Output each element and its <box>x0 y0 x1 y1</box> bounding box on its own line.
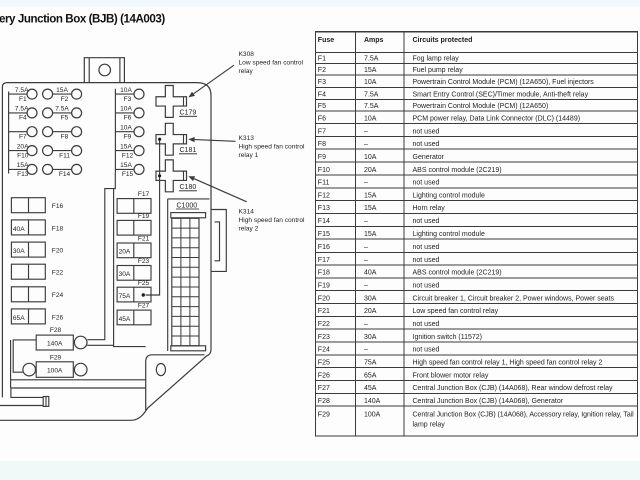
svg-text:Low speed fan control: Low speed fan control <box>239 60 304 67</box>
svg-text:–: – <box>364 141 368 148</box>
svg-text:F1: F1 <box>19 96 27 103</box>
svg-text:10A: 10A <box>364 79 377 86</box>
svg-text:140A: 140A <box>47 341 63 348</box>
svg-text:20A: 20A <box>364 167 377 174</box>
svg-text:15A: 15A <box>120 162 132 169</box>
svg-text:–: – <box>364 218 368 225</box>
svg-text:65A: 65A <box>364 372 377 379</box>
svg-text:F5: F5 <box>61 115 69 122</box>
svg-text:F19: F19 <box>318 283 330 290</box>
svg-text:F29: F29 <box>50 355 62 362</box>
svg-text:F26: F26 <box>318 372 330 379</box>
svg-text:F20: F20 <box>52 248 64 255</box>
svg-text:45A: 45A <box>119 316 131 323</box>
svg-text:40A: 40A <box>13 226 25 233</box>
svg-text:Central Junction Box (CJB) (14: Central Junction Box (CJB) (14A068), Acc… <box>413 411 635 418</box>
svg-text:K313: K313 <box>239 135 255 142</box>
svg-text:F3: F3 <box>318 79 326 86</box>
svg-text:C179: C179 <box>180 110 197 117</box>
svg-text:F16: F16 <box>52 203 64 210</box>
svg-text:–: – <box>364 244 368 251</box>
svg-text:F13: F13 <box>17 171 29 178</box>
svg-text:Circuit breaker 1, Circuit bre: Circuit breaker 1, Circuit breaker 2, Po… <box>413 295 615 302</box>
svg-text:not used: not used <box>413 321 440 328</box>
svg-text:10A: 10A <box>120 87 132 94</box>
svg-text:not used: not used <box>413 128 440 135</box>
svg-text:not used: not used <box>413 283 440 290</box>
svg-text:–: – <box>364 283 368 290</box>
svg-text:15A: 15A <box>364 67 377 74</box>
svg-text:C1000: C1000 <box>177 202 198 209</box>
svg-text:Circuits protected: Circuits protected <box>413 37 473 44</box>
svg-text:Powertrain Control Module (PCM: Powertrain Control Module (PCM) (12A650) <box>413 103 549 110</box>
svg-text:lamp relay: lamp relay <box>413 422 446 429</box>
svg-text:PCM power relay, Data Link Con: PCM power relay, Data Link Connector (DL… <box>413 116 581 123</box>
svg-text:F24: F24 <box>318 347 330 354</box>
svg-text:F26: F26 <box>52 314 64 321</box>
svg-text:Smart Entry Control (SEC)/Time: Smart Entry Control (SEC)/Timer module, … <box>413 91 589 98</box>
svg-text:15A: 15A <box>120 143 132 150</box>
svg-text:F11: F11 <box>59 152 70 159</box>
svg-text:F27: F27 <box>138 303 150 310</box>
svg-text:Low speed fan control relay: Low speed fan control relay <box>413 308 499 315</box>
svg-text:140A: 140A <box>364 398 381 405</box>
svg-text:10A: 10A <box>120 125 132 132</box>
svg-text:F29: F29 <box>318 411 330 418</box>
svg-text:F5: F5 <box>318 103 326 110</box>
svg-text:Fuse: Fuse <box>318 37 334 44</box>
svg-text:7.5A: 7.5A <box>15 87 29 94</box>
svg-text:F9: F9 <box>318 154 326 161</box>
svg-text:ABS control module (2C219): ABS control module (2C219) <box>413 167 502 174</box>
svg-text:30A: 30A <box>13 248 25 255</box>
svg-text:Central Junction Box (CJB) (14: Central Junction Box (CJB) (14A068), Rea… <box>413 385 613 392</box>
svg-text:Front blower motor relay: Front blower motor relay <box>413 372 489 379</box>
svg-text:F14: F14 <box>318 218 330 225</box>
svg-text:15A: 15A <box>56 87 68 94</box>
svg-text:F1: F1 <box>318 55 326 62</box>
svg-text:Ignition switch (11572): Ignition switch (11572) <box>413 334 483 341</box>
svg-text:F25: F25 <box>318 360 330 367</box>
svg-text:F15: F15 <box>122 171 134 178</box>
svg-text:K314: K314 <box>239 209 255 216</box>
svg-text:F7: F7 <box>19 134 27 141</box>
svg-text:F3: F3 <box>124 96 132 103</box>
svg-text:F7: F7 <box>318 128 326 135</box>
svg-text:F17: F17 <box>318 257 330 264</box>
svg-text:relay 1: relay 1 <box>239 152 259 159</box>
svg-text:relay 2: relay 2 <box>239 226 259 233</box>
svg-text:Fog lamp relay: Fog lamp relay <box>413 55 460 62</box>
svg-text:F23: F23 <box>138 258 150 265</box>
svg-text:ABS control module (2C219): ABS control module (2C219) <box>413 270 502 277</box>
svg-text:15A: 15A <box>364 231 377 238</box>
svg-text:Powertrain Control Module (PCM: Powertrain Control Module (PCM) (12A650)… <box>413 79 595 86</box>
svg-text:not used: not used <box>413 218 440 225</box>
svg-text:7.5A: 7.5A <box>364 103 379 110</box>
svg-text:F15: F15 <box>318 231 330 238</box>
svg-text:–: – <box>364 128 368 135</box>
svg-text:F6: F6 <box>318 116 326 123</box>
svg-text:F23: F23 <box>318 334 330 341</box>
svg-text:Central Junction Box (CJB) (14: Central Junction Box (CJB) (14A068), Gen… <box>413 398 564 405</box>
svg-text:F8: F8 <box>61 134 69 141</box>
svg-text:Lighting control module: Lighting control module <box>413 192 485 199</box>
svg-text:ery Junction Box (BJB) (14A003: ery Junction Box (BJB) (14A003) <box>0 13 165 26</box>
svg-text:F21: F21 <box>138 236 150 243</box>
svg-text:not used: not used <box>413 257 440 264</box>
svg-text:65A: 65A <box>13 315 25 322</box>
svg-text:F16: F16 <box>318 244 330 251</box>
svg-text:F24: F24 <box>52 292 64 299</box>
svg-text:not used: not used <box>413 180 440 187</box>
svg-text:–: – <box>364 257 368 264</box>
svg-text:F6: F6 <box>124 115 132 122</box>
svg-text:Amps: Amps <box>364 37 384 44</box>
svg-text:100A: 100A <box>364 411 381 418</box>
svg-text:F28: F28 <box>318 398 330 405</box>
svg-text:relay: relay <box>239 68 254 75</box>
svg-text:F18: F18 <box>52 225 64 232</box>
svg-text:not used: not used <box>413 141 440 148</box>
svg-text:F20: F20 <box>318 295 330 302</box>
svg-text:7.5A: 7.5A <box>364 91 379 98</box>
svg-text:15A: 15A <box>364 205 377 212</box>
svg-text:100A: 100A <box>47 367 63 374</box>
svg-text:F10: F10 <box>318 167 330 174</box>
svg-text:10A: 10A <box>364 116 377 123</box>
svg-text:F17: F17 <box>138 191 150 198</box>
svg-text:F4: F4 <box>19 115 27 122</box>
svg-text:F8: F8 <box>318 141 326 148</box>
svg-text:–: – <box>364 180 368 187</box>
svg-text:75A: 75A <box>119 293 131 300</box>
svg-text:F2: F2 <box>61 96 69 103</box>
svg-text:7.5A: 7.5A <box>55 106 69 113</box>
svg-text:F22: F22 <box>318 321 330 328</box>
svg-text:40A: 40A <box>364 270 377 277</box>
svg-text:F14: F14 <box>59 171 71 178</box>
svg-text:F4: F4 <box>318 91 326 98</box>
svg-text:C181: C181 <box>180 147 197 154</box>
svg-text:F28: F28 <box>50 327 62 334</box>
svg-text:F9: F9 <box>124 134 132 141</box>
svg-text:F18: F18 <box>318 270 330 277</box>
svg-text:–: – <box>364 347 368 354</box>
svg-text:20A: 20A <box>364 308 377 315</box>
svg-text:not used: not used <box>413 347 440 354</box>
svg-text:Horn relay: Horn relay <box>413 205 446 212</box>
svg-text:K308: K308 <box>239 51 255 58</box>
svg-text:10A: 10A <box>120 106 132 113</box>
svg-text:F10: F10 <box>17 152 29 159</box>
svg-text:75A: 75A <box>364 360 377 367</box>
svg-text:F13: F13 <box>318 205 330 212</box>
svg-text:15A: 15A <box>17 162 29 169</box>
svg-text:F27: F27 <box>318 385 330 392</box>
svg-text:Generator: Generator <box>413 154 445 161</box>
svg-text:10A: 10A <box>364 154 377 161</box>
svg-text:Fuel pump relay: Fuel pump relay <box>413 67 464 74</box>
svg-text:High speed fan control: High speed fan control <box>239 143 306 150</box>
svg-text:7.5A: 7.5A <box>364 55 379 62</box>
svg-text:F2: F2 <box>318 67 326 74</box>
svg-text:High speed fan control relay 1: High speed fan control relay 1, High spe… <box>413 360 603 367</box>
svg-text:20A: 20A <box>119 249 131 256</box>
svg-text:Lighting control module: Lighting control module <box>413 231 485 238</box>
svg-text:30A: 30A <box>119 271 131 278</box>
svg-text:7.5A: 7.5A <box>15 106 29 113</box>
svg-text:C180: C180 <box>180 184 197 191</box>
svg-text:F25: F25 <box>138 280 150 287</box>
svg-text:30A: 30A <box>364 295 377 302</box>
svg-text:15A: 15A <box>364 192 377 199</box>
svg-text:High speed fan control: High speed fan control <box>239 217 306 224</box>
svg-text:not used: not used <box>413 244 440 251</box>
svg-text:45A: 45A <box>364 385 377 392</box>
svg-text:30A: 30A <box>364 334 377 341</box>
svg-text:–: – <box>364 321 368 328</box>
svg-text:F11: F11 <box>318 180 330 187</box>
svg-text:F22: F22 <box>52 270 64 277</box>
svg-text:F21: F21 <box>318 308 330 315</box>
svg-text:20A: 20A <box>17 143 29 150</box>
svg-text:F12: F12 <box>122 152 134 159</box>
svg-text:F19: F19 <box>138 213 150 220</box>
svg-text:F12: F12 <box>318 192 330 199</box>
